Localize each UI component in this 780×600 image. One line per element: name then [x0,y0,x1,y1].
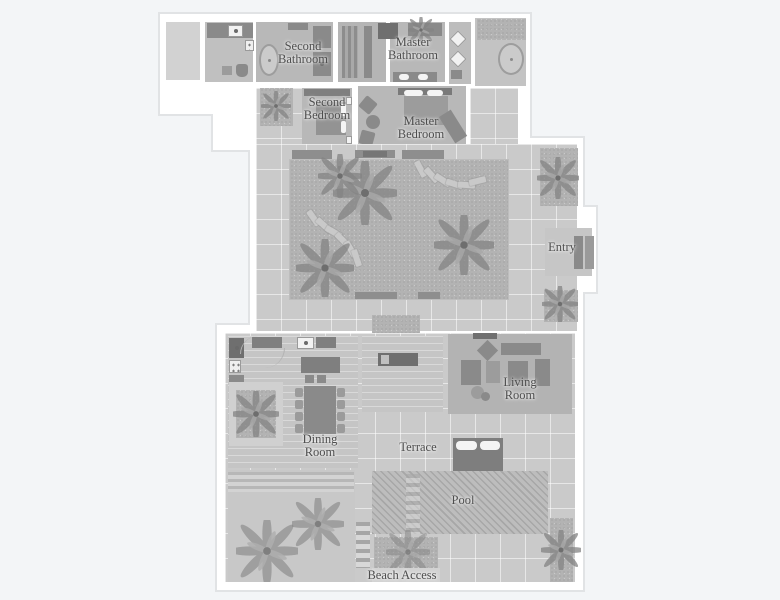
storage-closet [166,22,200,80]
palm-tree-icon [292,498,344,550]
doormat [402,150,444,159]
closet-shelf [364,26,372,78]
armchair-icon [486,361,500,383]
room-label-second-bedroom: SecondBedroom [304,96,351,122]
doorstep [363,151,387,157]
nightstand-icon [346,136,352,144]
entry-door-panel [585,236,594,269]
palm-tree-icon [541,530,581,570]
room-label-dining-room: DiningRoom [303,433,338,459]
potted-plant-icon [481,392,490,401]
dining-chair-icon [337,412,345,421]
side-walkway [470,88,518,148]
palm-tree-icon [537,157,579,199]
room-label-master-bathroom: MasterBathroom [388,36,438,62]
washer-icon [228,25,243,37]
hall-floor [362,336,443,412]
deck-louvers [228,472,354,492]
sofa-icon [501,343,541,355]
palm-tree-icon [542,286,578,322]
room-label-entry: Entry [548,241,576,254]
bathtub-icon [259,44,279,76]
room-label-terrace: Terrace [399,441,436,454]
wc-fixture [451,70,462,79]
sink-basin-icon [418,74,428,80]
bar-stool-icon [317,375,326,383]
room-label-second-bathroom: SecondBathroom [278,40,328,66]
palm-tree-icon [434,215,494,275]
dining-chair-icon [337,388,345,397]
dining-chair-icon [337,400,345,409]
room-label-master-bedroom: MasterBedroom [398,115,445,141]
bathroom-shelf [288,23,308,30]
room-label-pool: Pool [452,494,475,507]
dining-chair-icon [337,424,345,433]
beach-steps [356,522,370,568]
utility-sink-icon [245,40,254,51]
sofa-icon [535,359,550,386]
console-tray [381,355,389,364]
dining-table [304,386,336,434]
outdoor-gravel-bed [477,19,526,40]
side-table-icon [366,115,380,129]
dining-chair-icon [295,388,303,397]
sink-basin-icon [399,74,409,80]
bar-stool-icon [305,375,314,383]
daybed-pillow-icon [456,441,477,450]
palm-tree-icon [233,391,279,437]
boardwalk-steps [406,474,420,534]
room-label-beach-access: Beach Access [367,569,436,582]
kitchen-sink-icon [229,360,241,373]
floor-plan: SecondBathroom MasterBathroom SecondBedr… [0,0,780,600]
dining-chair-icon [295,400,303,409]
outdoor-bathtub-icon [498,43,524,75]
sofa-icon [461,360,481,385]
kitchen-island [301,357,340,373]
dining-chair-icon [295,412,303,421]
palm-tree-icon [296,239,354,297]
doormat [355,292,397,299]
doormat [418,292,440,299]
cooktop-icon [297,337,314,349]
kitchen-counter [316,337,336,348]
wardrobe-icon [342,26,358,78]
tv-console [473,333,497,339]
floor-plan-canvas: SecondBathroom MasterBathroom SecondBedr… [0,0,780,600]
bidet-icon [222,66,232,75]
toilet-icon [236,64,248,77]
daybed-pillow-icon [480,441,500,450]
palm-tree-icon [261,91,291,121]
palm-tree-icon [236,520,298,582]
palm-tree-icon [318,154,362,198]
room-label-living-room: LivingRoom [503,376,536,402]
pillow-icon [341,121,346,133]
